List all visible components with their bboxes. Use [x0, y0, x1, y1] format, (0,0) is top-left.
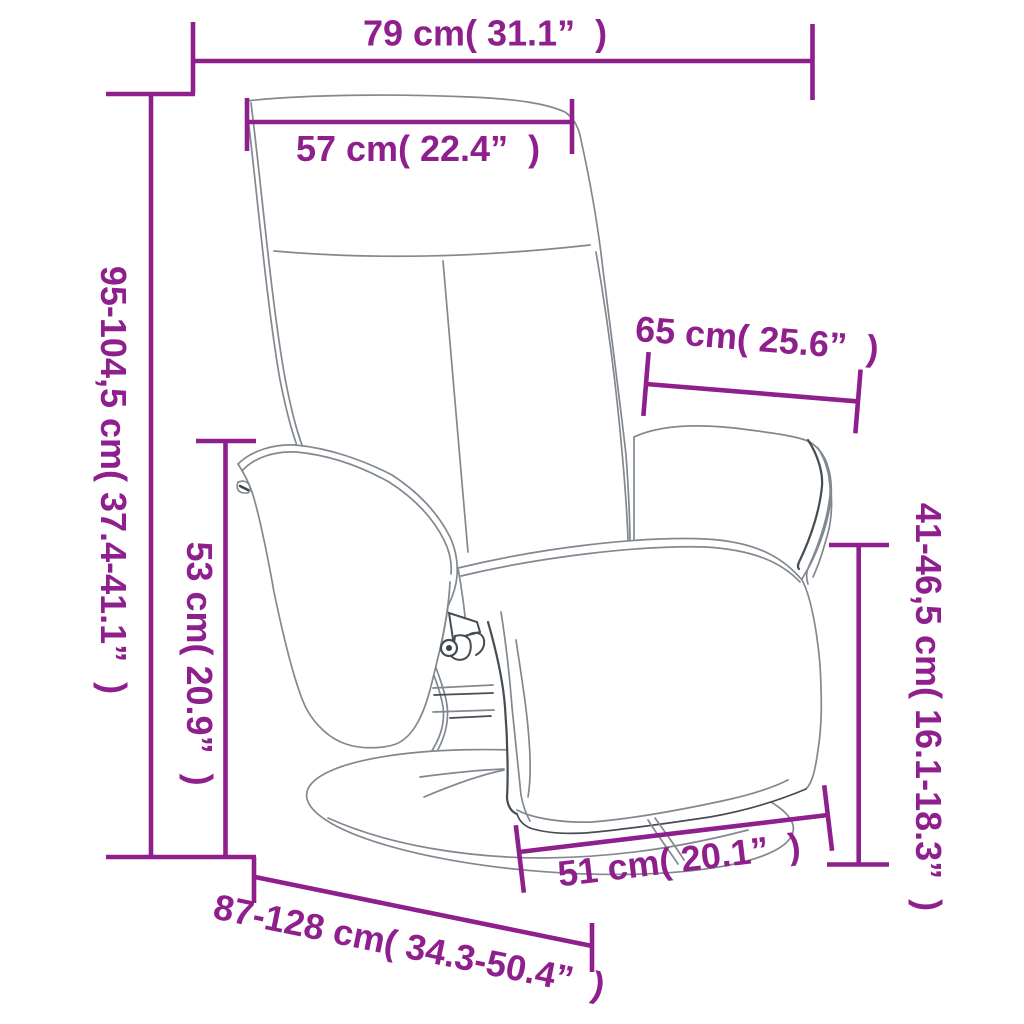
svg-text:53 cm( 20.9” ): 53 cm( 20.9” ) — [179, 541, 220, 785]
svg-text:95-104,5 cm( 37.4-41.1” ): 95-104,5 cm( 37.4-41.1” ) — [93, 266, 134, 694]
svg-text:41-46,5 cm( 16.1-18.3” ): 41-46,5 cm( 16.1-18.3” ) — [908, 503, 949, 911]
svg-text:57 cm( 22.4” ): 57 cm( 22.4” ) — [296, 128, 540, 169]
svg-text:79 cm( 31.1” ): 79 cm( 31.1” ) — [363, 13, 607, 54]
